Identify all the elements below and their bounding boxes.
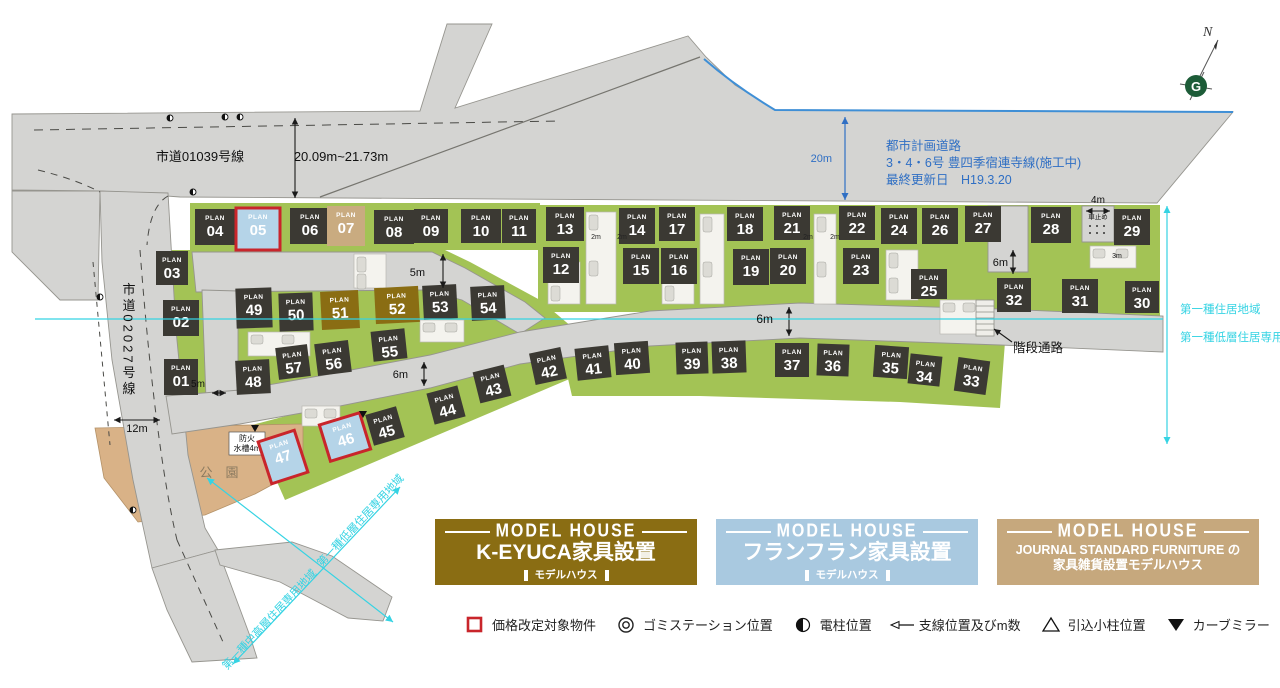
plan-word-label: PLAN xyxy=(244,294,264,302)
site-plan-page: 防火 水槽4m 車止め PLAN01PLAN02PLAN03PLAN04PLAN… xyxy=(0,0,1280,688)
legend-item: 電柱位置 xyxy=(790,615,872,634)
legend-item-label: 支線位置及びm数 xyxy=(919,615,1021,634)
plan-block-03[interactable]: PLAN03 xyxy=(156,251,188,285)
plan-word-label: PLAN xyxy=(930,214,950,221)
plan-block-02[interactable]: PLAN02 xyxy=(163,300,199,336)
zone-right-bottom-label: 第一種低層住居専用地域 xyxy=(1180,330,1280,344)
pull-pole-icon xyxy=(1038,616,1064,634)
plan-word-label: PLAN xyxy=(735,213,755,220)
plan-block-29[interactable]: PLAN29 xyxy=(1114,209,1150,245)
stair-passage xyxy=(976,300,994,336)
car-icon xyxy=(251,335,263,344)
svg-text:車止め: 車止め xyxy=(1088,212,1108,221)
plan-word-label: PLAN xyxy=(171,365,191,372)
plan-block-52[interactable]: PLAN52 xyxy=(374,286,420,324)
dim-4m: 4m xyxy=(1091,195,1105,206)
car-icon xyxy=(943,303,955,312)
dim-5m-a: 5m xyxy=(410,267,425,279)
plan-number-label: 48 xyxy=(245,374,263,392)
legend-item: ゴミステーション位置 xyxy=(613,615,773,634)
plan-number-label: 24 xyxy=(891,222,908,239)
plan-word-label: PLAN xyxy=(336,212,356,219)
plan-number-label: 40 xyxy=(624,355,642,373)
plan-word-label: PLAN xyxy=(1041,213,1061,220)
north-compass: N G xyxy=(1180,25,1218,100)
plan-number-label: 57 xyxy=(284,359,303,378)
utility-pole-icon xyxy=(222,114,228,120)
plan-word-label: PLAN xyxy=(551,253,571,260)
plan-number-label: 14 xyxy=(629,222,646,239)
plan-block-40[interactable]: PLAN40 xyxy=(614,341,650,375)
plan-number-label: 02 xyxy=(173,314,190,331)
plan-number-label: 30 xyxy=(1134,295,1151,312)
car-icon xyxy=(305,409,317,418)
plan-number-label: 35 xyxy=(882,359,900,377)
plan-word-label: PLAN xyxy=(387,293,407,301)
plan-word-label: PLAN xyxy=(248,214,268,221)
plan-number-label: 36 xyxy=(824,358,841,376)
plan-word-label: PLAN xyxy=(621,347,641,355)
planned-road-line2: 3・4・6号 豊四季宿連寺線(施工中) xyxy=(886,155,1081,170)
map-legend: 価格改定対象物件ゴミステーション位置電柱位置支線位置及びm数引込小柱位置カーブミ… xyxy=(462,615,1262,634)
model-house-header: MODEL HOUSE xyxy=(716,523,978,541)
plan-number-label: 11 xyxy=(511,223,527,240)
plan-block-56[interactable]: PLAN56 xyxy=(314,340,352,376)
car-icon xyxy=(551,286,560,301)
plan-block-13[interactable]: PLAN13 xyxy=(546,207,584,241)
plan-number-label: 01 xyxy=(173,373,190,390)
plan-number-label: 03 xyxy=(164,265,181,282)
plan-block-19[interactable]: PLAN19 xyxy=(733,249,769,285)
plan-word-label: PLAN xyxy=(471,215,491,222)
plan-number-label: 21 xyxy=(784,220,801,237)
model-house-title: フランフラン家具設置 xyxy=(716,541,978,565)
plan-number-label: 42 xyxy=(539,362,559,382)
road-left-flank xyxy=(12,191,100,300)
stair-passage-label: 階段通路 xyxy=(1013,340,1064,355)
curve-mirror-icon xyxy=(1163,616,1189,634)
plan-number-label: 18 xyxy=(737,221,754,238)
plan-block-22[interactable]: PLAN22 xyxy=(839,206,875,240)
plan-number-label: 55 xyxy=(381,343,399,362)
plan-number-label: 50 xyxy=(287,307,304,325)
legend-item-label: ゴミステーション位置 xyxy=(643,615,773,634)
plan-number-label: 20 xyxy=(780,262,797,279)
plan-word-label: PLAN xyxy=(782,349,802,356)
plan-number-label: 51 xyxy=(331,305,349,323)
compass-g-label: G xyxy=(1191,79,1201,94)
dim-12m: 12m xyxy=(126,423,147,435)
plan-word-label: PLAN xyxy=(823,350,843,358)
car-icon xyxy=(357,257,366,272)
dim-2m-a: 2m xyxy=(591,234,601,241)
plan-number-label: 17 xyxy=(669,221,686,238)
plan-word-label: PLAN xyxy=(851,254,871,261)
road1-label: 市道01039号線 xyxy=(156,149,244,164)
dim-20m: 20m xyxy=(811,153,832,165)
plan-number-label: 06 xyxy=(302,222,319,239)
road-top xyxy=(12,24,1233,203)
plan-block-12[interactable]: PLAN12 xyxy=(543,247,579,283)
plan-word-label: PLAN xyxy=(682,348,702,356)
plan-number-label: 28 xyxy=(1043,221,1060,238)
car-icon xyxy=(817,262,826,277)
plan-number-label: 53 xyxy=(432,299,450,317)
plan-number-label: 23 xyxy=(853,262,870,279)
plan-block-27[interactable]: PLAN27 xyxy=(965,206,1001,242)
dim-5m-b: 5m xyxy=(191,379,205,390)
plan-block-20[interactable]: PLAN20 xyxy=(770,248,806,284)
legend-item-label: 電柱位置 xyxy=(820,615,872,634)
plan-block-34[interactable]: PLAN34 xyxy=(907,353,942,387)
utility-pole-icon xyxy=(237,114,243,120)
plan-number-label: 07 xyxy=(338,220,355,237)
car-icon xyxy=(703,217,712,232)
plan-number-label: 19 xyxy=(743,263,760,280)
model-house-subtitle: モデルハウス xyxy=(524,570,609,581)
legend-item-label: カーブミラー xyxy=(1193,615,1270,634)
plan-word-label: PLAN xyxy=(919,275,939,282)
plan-number-label: 33 xyxy=(962,372,981,391)
zone-right-top-label: 第一種住居地域 xyxy=(1180,302,1261,316)
car-icon xyxy=(589,215,598,230)
plan-number-label: 56 xyxy=(324,355,343,374)
car-icon xyxy=(889,278,898,293)
plan-block-38[interactable]: PLAN38 xyxy=(711,340,746,373)
plan-number-label: 31 xyxy=(1072,293,1089,310)
plan-number-label: 37 xyxy=(784,357,801,374)
legend-item-label: 価格改定対象物件 xyxy=(492,615,596,634)
legend-item: 引込小柱位置 xyxy=(1038,615,1146,634)
model-house-banner-keyuca[interactable]: MODEL HOUSEK-EYUCA家具設置モデルハウス xyxy=(435,519,697,585)
dim-6m-b: 6m xyxy=(993,257,1008,269)
zone-diag-low-label: 第一種低層住居専用地域 xyxy=(314,471,407,569)
plan-block-41[interactable]: PLAN41 xyxy=(574,345,611,380)
plan-block-55[interactable]: PLAN55 xyxy=(371,328,408,362)
plan-number-label: 39 xyxy=(684,356,701,374)
car-icon xyxy=(589,261,598,276)
plan-word-label: PLAN xyxy=(555,213,575,220)
legend-item: カーブミラー xyxy=(1163,615,1270,634)
car-icon xyxy=(1093,249,1105,258)
plan-block-08[interactable]: PLAN08 xyxy=(374,210,414,244)
plan-block-24[interactable]: PLAN24 xyxy=(881,208,917,244)
north-label: N xyxy=(1202,25,1213,40)
car-icon xyxy=(703,262,712,277)
plan-number-label: 15 xyxy=(633,262,650,279)
model-house-subtitle: モデルハウス xyxy=(805,570,890,581)
utility-pole-icon xyxy=(190,189,196,195)
plan-block-50[interactable]: PLAN50 xyxy=(278,292,313,331)
plan-block-54[interactable]: PLAN54 xyxy=(470,285,506,321)
park-label: 公 園 xyxy=(199,465,238,480)
plan-number-label: 04 xyxy=(207,223,224,240)
model-house-header-label: MODEL HOUSE xyxy=(1058,522,1199,543)
road1-width-label: 20.09m~21.73m xyxy=(294,149,388,164)
plan-word-label: PLAN xyxy=(847,212,867,219)
dim-2m-d: 2m xyxy=(830,234,840,241)
plan-word-label: PLAN xyxy=(1004,284,1024,291)
gomi-station-icon xyxy=(613,616,639,634)
plan-word-label: PLAN xyxy=(509,215,529,222)
model-house-header-label: MODEL HOUSE xyxy=(777,522,918,543)
plan-number-label: 54 xyxy=(480,300,498,318)
dim-6m-c: 6m xyxy=(393,369,408,381)
plan-number-label: 29 xyxy=(1124,223,1141,240)
plan-number-label: 25 xyxy=(921,283,938,300)
road-connector xyxy=(202,290,238,399)
plan-block-04[interactable]: PLAN04 xyxy=(195,209,235,245)
plan-block-51[interactable]: PLAN51 xyxy=(320,290,360,330)
plan-number-label: 41 xyxy=(584,360,602,379)
plan-word-label: PLAN xyxy=(300,214,320,221)
car-icon xyxy=(324,409,336,418)
plan-word-label: PLAN xyxy=(741,255,761,262)
plan-block-17[interactable]: PLAN17 xyxy=(659,207,695,241)
plan-block-57[interactable]: PLAN57 xyxy=(275,344,311,380)
pole-icon xyxy=(790,616,816,634)
plan-block-49[interactable]: PLAN49 xyxy=(235,287,272,328)
model-house-header-label: MODEL HOUSE xyxy=(496,522,637,543)
plan-block-23[interactable]: PLAN23 xyxy=(843,248,879,284)
plan-number-label: 49 xyxy=(245,302,262,320)
plan-block-42[interactable]: PLAN42 xyxy=(529,347,567,385)
plan-word-label: PLAN xyxy=(667,213,687,220)
legend-item: 支線位置及びm数 xyxy=(889,615,1021,634)
plan-block-31[interactable]: PLAN31 xyxy=(1062,279,1098,313)
plan-number-label: 38 xyxy=(721,355,738,373)
plan-word-label: PLAN xyxy=(973,212,993,219)
utility-pole-icon xyxy=(97,294,103,300)
car-icon xyxy=(889,253,898,268)
model-house-header: MODEL HOUSE xyxy=(435,523,697,541)
plan-number-label: 09 xyxy=(423,223,440,240)
model-house-header: MODEL HOUSE xyxy=(997,523,1259,541)
plan-number-label: 34 xyxy=(915,368,934,387)
plan-word-label: PLAN xyxy=(384,216,404,223)
dim-2m-b: 2m xyxy=(617,234,627,241)
car-icon xyxy=(423,323,435,332)
plan-word-label: PLAN xyxy=(286,299,306,307)
plan-number-label: 08 xyxy=(386,224,403,241)
plan-number-label: 27 xyxy=(975,220,992,237)
plan-block-05[interactable]: PLAN05 xyxy=(236,208,280,250)
plan-word-label: PLAN xyxy=(631,254,651,261)
svg-text:水槽4m: 水槽4m xyxy=(233,443,260,453)
plan-word-label: PLAN xyxy=(782,212,802,219)
plan-block-16[interactable]: PLAN16 xyxy=(661,248,697,284)
car-icon xyxy=(963,303,975,312)
planned-road-line3: 最終更新日 H19.3.20 xyxy=(886,172,1012,187)
plan-block-26[interactable]: PLAN26 xyxy=(922,208,958,244)
dim-3m: 3m xyxy=(1112,253,1122,260)
plan-word-label: PLAN xyxy=(889,214,909,221)
plan-block-11[interactable]: PLAN11 xyxy=(502,209,536,243)
plan-block-09[interactable]: PLAN09 xyxy=(414,209,448,243)
utility-pole-icon xyxy=(130,507,136,513)
plan-word-label: PLAN xyxy=(1122,215,1142,222)
model-house-banner-journal-standard[interactable]: MODEL HOUSEJOURNAL STANDARD FURNITURE の家… xyxy=(997,519,1259,585)
plan-block-07[interactable]: PLAN07 xyxy=(327,206,365,246)
car-icon xyxy=(445,323,457,332)
plan-block-48[interactable]: PLAN48 xyxy=(235,359,271,395)
plan-word-label: PLAN xyxy=(430,290,450,298)
plan-word-label: PLAN xyxy=(243,365,263,373)
plan-number-label: 26 xyxy=(932,222,949,239)
plan-number-label: 22 xyxy=(849,220,866,237)
plan-word-label: PLAN xyxy=(1132,287,1152,294)
plan-word-label: PLAN xyxy=(162,257,182,264)
plan-block-18[interactable]: PLAN18 xyxy=(727,207,763,241)
plan-word-label: PLAN xyxy=(669,254,689,261)
car-icon xyxy=(282,335,294,344)
plan-word-label: PLAN xyxy=(329,297,349,305)
plan-number-label: 16 xyxy=(671,262,688,279)
plan-number-label: 32 xyxy=(1006,292,1023,309)
legend-item-label: 引込小柱位置 xyxy=(1068,615,1146,634)
plan-word-label: PLAN xyxy=(421,215,441,222)
plan-block-32[interactable]: PLAN32 xyxy=(997,278,1031,312)
plan-number-label: 52 xyxy=(388,301,406,319)
plan-word-label: PLAN xyxy=(778,254,798,261)
plan-block-33[interactable]: PLAN33 xyxy=(954,357,990,395)
planned-road-line1: 都市計画道路 xyxy=(886,138,962,153)
plan-block-06[interactable]: PLAN06 xyxy=(290,208,330,244)
model-house-title: K-EYUCA家具設置 xyxy=(435,541,697,565)
plan-block-28[interactable]: PLAN28 xyxy=(1031,207,1071,243)
plan-number-label: 12 xyxy=(553,261,570,278)
plan-word-label: PLAN xyxy=(478,291,498,299)
plan-word-label: PLAN xyxy=(1070,285,1090,292)
plan-block-30[interactable]: PLAN30 xyxy=(1125,281,1159,313)
legend-item: 価格改定対象物件 xyxy=(462,615,596,634)
car-icon xyxy=(357,274,366,289)
utility-pole-icon xyxy=(167,115,173,121)
plan-number-label: 10 xyxy=(473,223,490,240)
plan-block-15[interactable]: PLAN15 xyxy=(623,248,659,284)
planned-road-boundary-line xyxy=(704,59,1233,112)
plan-word-label: PLAN xyxy=(205,215,225,222)
plan-block-39[interactable]: PLAN39 xyxy=(675,341,708,374)
car-icon xyxy=(817,217,826,232)
price-square-icon xyxy=(462,616,488,634)
svg-text:防火: 防火 xyxy=(239,433,255,443)
model-house-banner-francfranc[interactable]: MODEL HOUSEフランフラン家具設置モデルハウス xyxy=(716,519,978,585)
plan-block-35[interactable]: PLAN35 xyxy=(873,345,909,379)
plan-word-label: PLAN xyxy=(627,214,647,221)
model-house-banners: MODEL HOUSEK-EYUCA家具設置モデルハウスMODEL HOUSEフ… xyxy=(435,519,1259,585)
plan-block-10[interactable]: PLAN10 xyxy=(461,209,501,243)
dim-2m-c: 2m xyxy=(803,234,813,241)
guy-wire-arrow-icon xyxy=(889,616,915,634)
dim-6m-a: 6m xyxy=(756,312,773,326)
plan-word-label: PLAN xyxy=(881,351,901,359)
plan-block-25[interactable]: PLAN25 xyxy=(911,269,947,300)
plan-number-label: 13 xyxy=(557,221,574,238)
plan-word-label: PLAN xyxy=(171,306,191,313)
plan-number-label: 05 xyxy=(250,222,267,239)
road2-label: 市道02027号線 xyxy=(121,282,136,398)
plan-word-label: PLAN xyxy=(719,347,739,355)
plan-block-37[interactable]: PLAN37 xyxy=(775,343,809,377)
plan-block-36[interactable]: PLAN36 xyxy=(816,343,849,376)
plan-block-53[interactable]: PLAN53 xyxy=(422,284,458,320)
model-house-title: JOURNAL STANDARD FURNITURE の家具雑貨設置モデルハウス xyxy=(997,541,1259,573)
car-icon xyxy=(665,286,674,301)
